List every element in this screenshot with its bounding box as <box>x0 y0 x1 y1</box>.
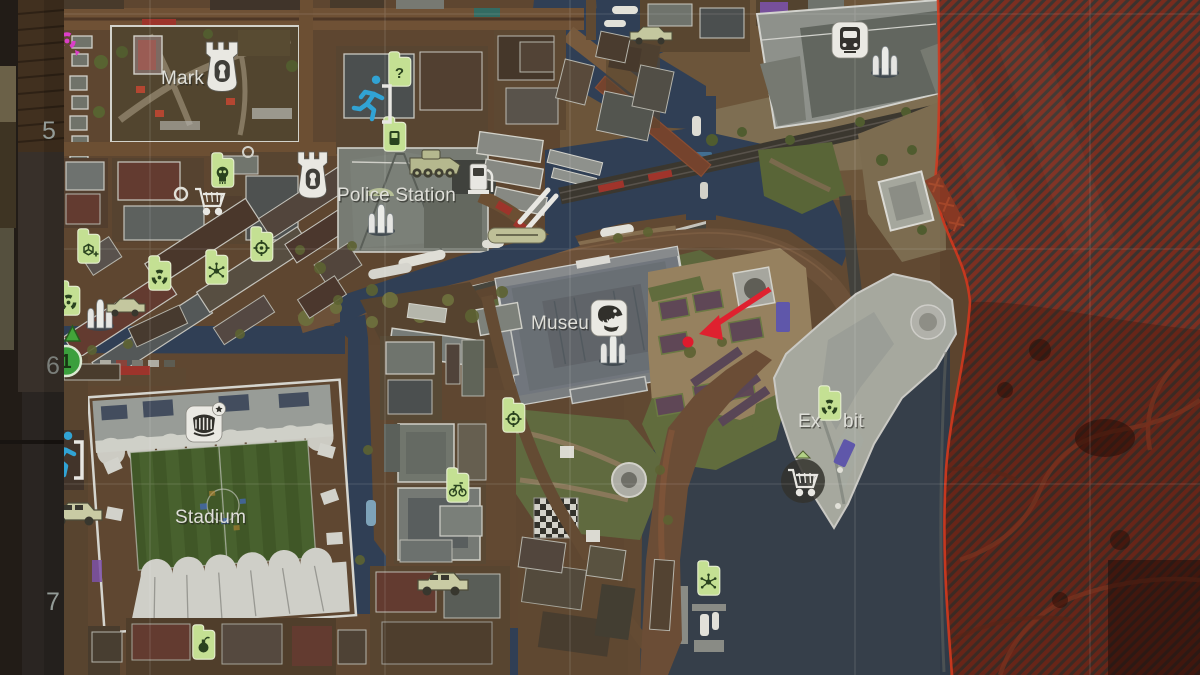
svg-text:7: 7 <box>46 588 60 616</box>
svg-text:5: 5 <box>42 117 56 145</box>
svg-text:6: 6 <box>46 352 60 380</box>
